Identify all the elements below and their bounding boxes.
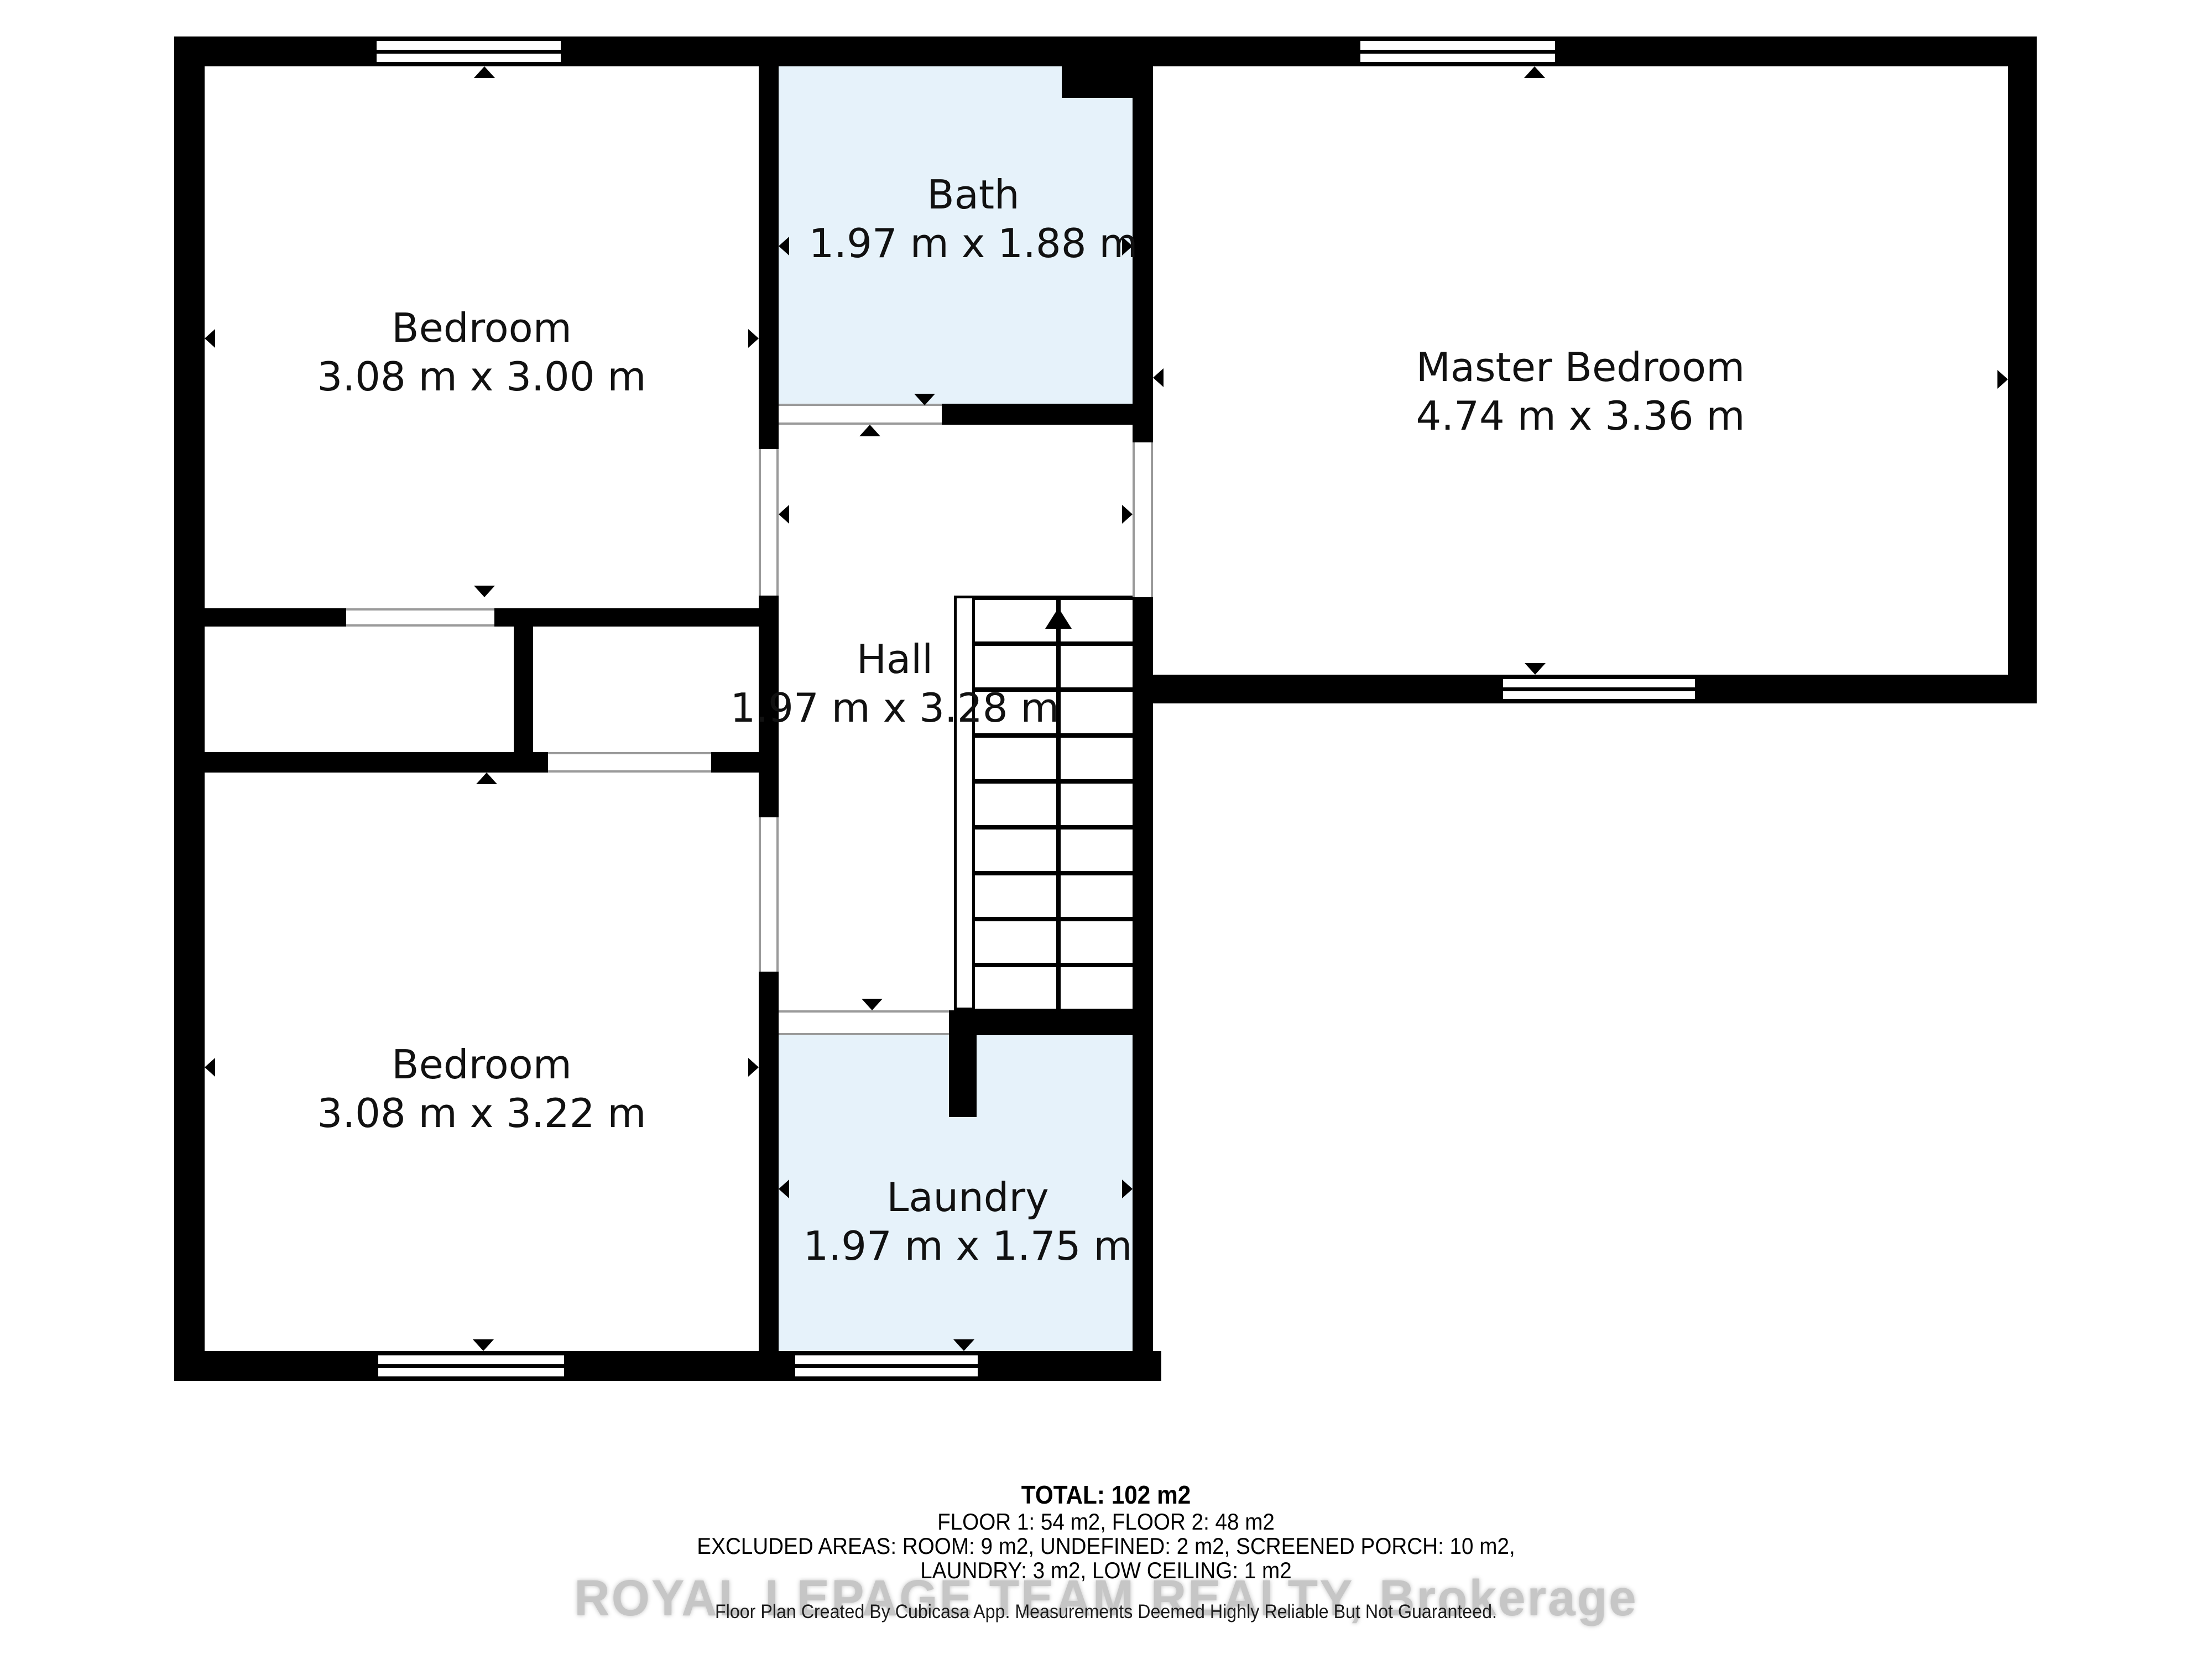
laundry-door-opening bbox=[779, 1033, 949, 1035]
disclaimer: Floor Plan Created By Cubicasa App. Meas… bbox=[88, 1601, 2124, 1623]
closet-door-opening bbox=[346, 608, 494, 611]
window-glass-line bbox=[378, 1364, 564, 1368]
door-marker-icon bbox=[859, 425, 880, 436]
excluded-areas-line1: EXCLUDED AREAS: ROOM: 9 m2, UNDEFINED: 2… bbox=[88, 1534, 2124, 1558]
floor-areas: FLOOR 1: 54 m2, FLOOR 2: 48 m2 bbox=[88, 1510, 2124, 1534]
dim-arrow-right-icon bbox=[1122, 505, 1133, 524]
wall-closet-bottom-right bbox=[711, 752, 759, 773]
wall-bath-left bbox=[759, 66, 779, 449]
door-marker-icon bbox=[476, 773, 497, 784]
dim-arrow-left-icon bbox=[779, 1180, 789, 1198]
room-dims: 1.97 m x 1.88 m bbox=[808, 219, 1138, 268]
closet-door-opening bbox=[548, 752, 711, 754]
dim-arrow-left-icon bbox=[1153, 368, 1164, 387]
bedroom1-door-opening bbox=[759, 449, 761, 596]
master-door-opening bbox=[1151, 442, 1153, 597]
excluded-areas-line2: LAUNDRY: 3 m2, LOW CEILING: 1 m2 bbox=[88, 1558, 2124, 1583]
wall-hall-right-lower bbox=[1133, 597, 1153, 1351]
room-name: Bath bbox=[808, 170, 1138, 219]
window-master-bottom bbox=[1499, 675, 1699, 703]
room-dims: 1.97 m x 1.75 m bbox=[803, 1222, 1132, 1270]
door-marker-icon bbox=[862, 999, 883, 1010]
dim-arrow-right-icon bbox=[1997, 370, 2008, 389]
window-laundry-bottom bbox=[791, 1351, 982, 1381]
dim-arrow-left-icon bbox=[205, 1058, 215, 1077]
room-name: Hall bbox=[730, 635, 1059, 684]
window-marker-icon bbox=[474, 66, 495, 78]
door-marker-icon bbox=[949, 1035, 970, 1047]
window-glass-line bbox=[377, 50, 561, 54]
window-glass-line bbox=[1503, 687, 1695, 691]
window-marker-icon bbox=[1525, 663, 1546, 675]
wall-exterior-right-master bbox=[2008, 36, 2037, 703]
master-door-opening bbox=[1133, 442, 1135, 597]
wall-exterior-bottom bbox=[174, 1351, 1161, 1381]
room-dims: 3.08 m x 3.00 m bbox=[317, 352, 646, 401]
room-dims: 4.74 m x 3.36 m bbox=[1416, 392, 1745, 440]
window-marker-icon bbox=[1524, 66, 1545, 78]
bath-notch bbox=[1062, 66, 1153, 98]
closet-door-opening bbox=[346, 624, 494, 627]
wall-exterior-left bbox=[174, 36, 205, 1381]
total-area: TOTAL: 102 m2 bbox=[88, 1482, 2124, 1507]
wall-laundry-left bbox=[759, 972, 779, 1351]
room-label-bath: Bath 1.97 m x 1.88 m bbox=[808, 170, 1138, 268]
room-label-bedroom2: Bedroom 3.08 m x 3.22 m bbox=[317, 1040, 646, 1138]
area-summary: TOTAL: 102 m2 FLOOR 1: 54 m2, FLOOR 2: 4… bbox=[88, 1482, 2124, 1583]
room-dims: 1.97 m x 3.28 m bbox=[730, 684, 1059, 732]
wall-closet-bottom-left bbox=[205, 752, 548, 773]
window-marker-icon bbox=[473, 1339, 494, 1351]
dim-arrow-left-icon bbox=[205, 329, 215, 348]
wall-closet-divider bbox=[514, 627, 533, 752]
room-name: Master Bedroom bbox=[1416, 343, 1745, 392]
wall-laundry-top bbox=[949, 1010, 1133, 1035]
room-dims: 3.08 m x 3.22 m bbox=[317, 1089, 646, 1138]
room-label-hall: Hall 1.97 m x 3.28 m bbox=[730, 635, 1059, 732]
room-label-laundry: Laundry 1.97 m x 1.75 m bbox=[803, 1173, 1132, 1270]
laundry-door-opening bbox=[779, 1010, 949, 1013]
window-glass-line bbox=[1360, 50, 1555, 54]
wall-stair-stub bbox=[949, 1035, 977, 1117]
bedroom2-door-opening bbox=[759, 817, 761, 972]
dim-arrow-left-icon bbox=[779, 237, 789, 255]
window-bedroom1-top bbox=[372, 36, 565, 66]
door-marker-icon bbox=[914, 394, 935, 405]
window-master-top bbox=[1356, 36, 1559, 66]
wall-closet-top-right bbox=[494, 608, 759, 627]
room-name: Bedroom bbox=[317, 304, 646, 352]
window-bedroom2-bottom bbox=[374, 1351, 568, 1381]
dim-arrow-right-icon bbox=[748, 1058, 759, 1077]
room-label-master: Master Bedroom 4.74 m x 3.36 m bbox=[1416, 343, 1745, 440]
window-marker-icon bbox=[953, 1339, 974, 1351]
floor-plan-page: ROYAL LEPAGE TEAM REALTY, Brokerage bbox=[0, 0, 2212, 1659]
window-glass-line bbox=[795, 1364, 978, 1368]
bedroom2-door-opening bbox=[776, 817, 779, 972]
room-name: Laundry bbox=[803, 1173, 1132, 1222]
dim-arrow-left-icon bbox=[779, 505, 789, 524]
wall-bath-bottom bbox=[942, 404, 1133, 425]
dim-arrow-right-icon bbox=[748, 329, 759, 348]
stair-up-arrow-icon bbox=[1045, 608, 1072, 629]
closet-door-opening bbox=[548, 770, 711, 773]
door-marker-icon bbox=[474, 586, 495, 597]
room-label-bedroom1: Bedroom 3.08 m x 3.00 m bbox=[317, 304, 646, 401]
wall-closet-top-left bbox=[205, 608, 346, 627]
room-name: Bedroom bbox=[317, 1040, 646, 1089]
